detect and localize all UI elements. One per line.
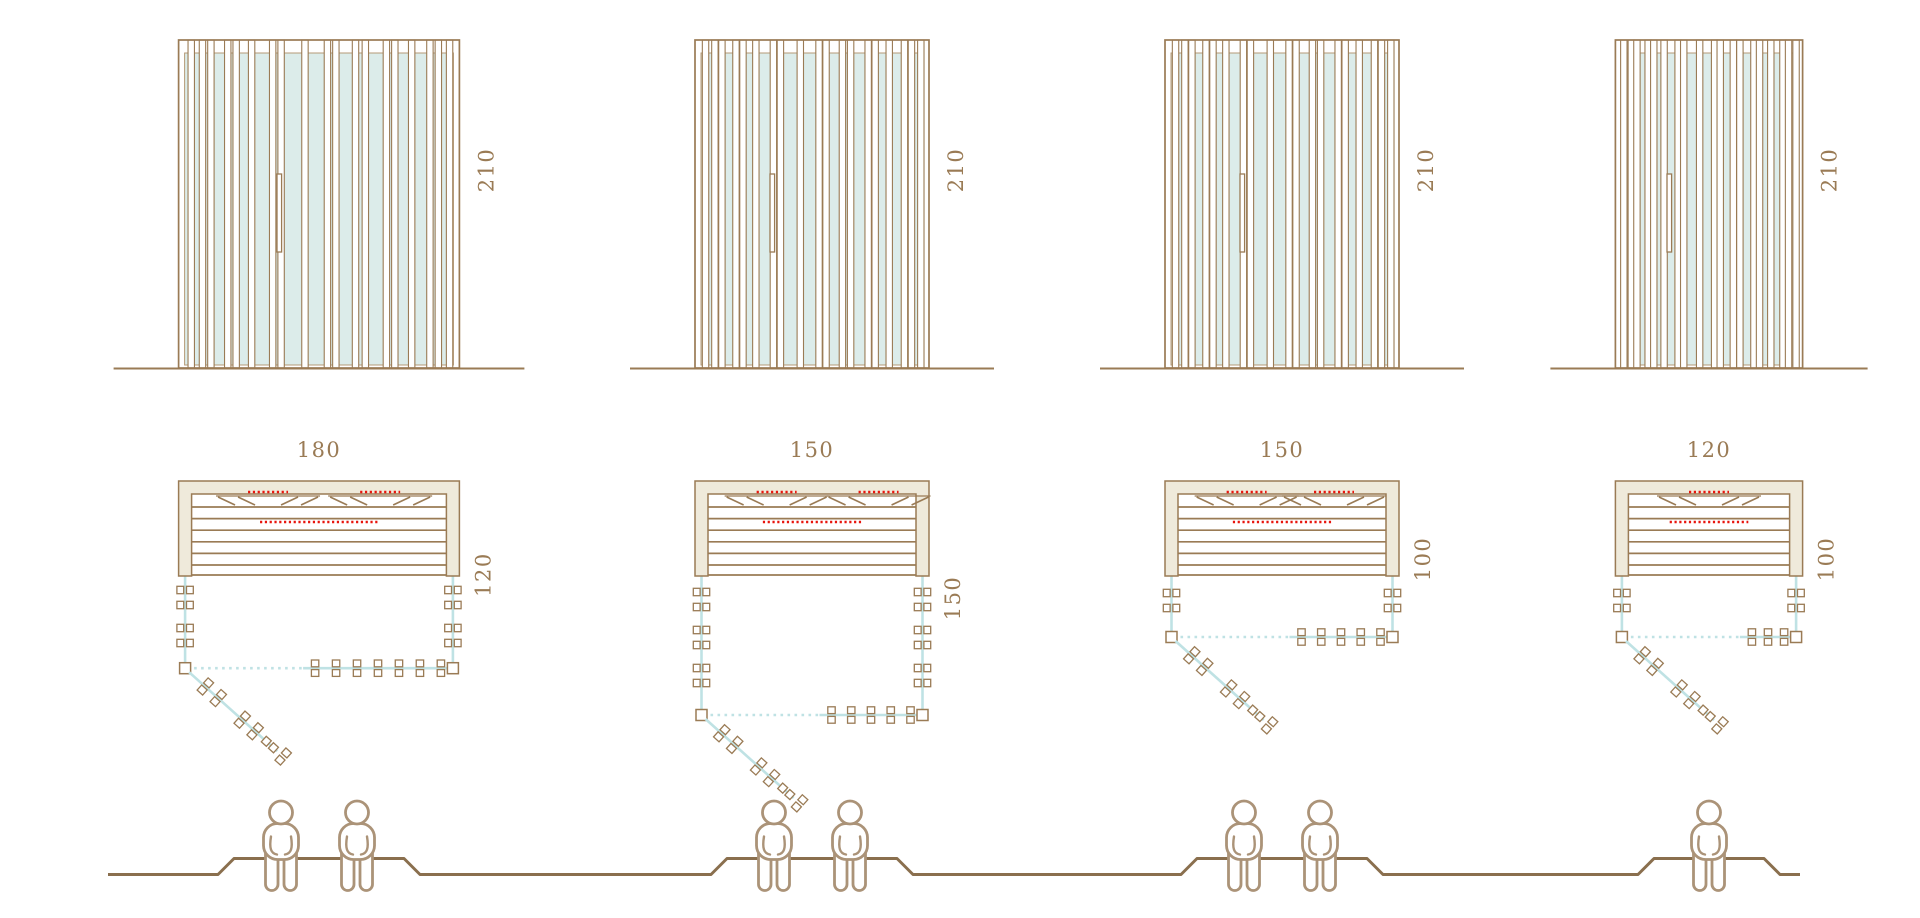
- clamp-plate: [703, 679, 710, 686]
- clamp-plate: [1780, 638, 1787, 645]
- wood-slat: [225, 40, 231, 368]
- corner-post: [447, 663, 458, 674]
- clamp-plate: [924, 603, 931, 610]
- depth-label: 120: [471, 552, 495, 597]
- wood-slat: [865, 40, 871, 368]
- wood-slat: [1634, 40, 1640, 368]
- seated-person-icon: [264, 801, 299, 891]
- vent-flap: [1347, 497, 1364, 505]
- person-head: [346, 801, 369, 824]
- clamp-plate: [703, 626, 710, 633]
- vent-flap: [727, 497, 744, 505]
- clamp-plate: [693, 664, 700, 671]
- clamp-plate: [703, 641, 710, 648]
- clamp-plate: [416, 670, 423, 677]
- vent-flap: [1197, 497, 1214, 505]
- clamp-plate: [1780, 629, 1787, 636]
- wood-slat: [777, 40, 783, 368]
- height-label: 210: [1414, 148, 1438, 193]
- clamp-plate: [1163, 589, 1170, 596]
- clamp-plate: [1173, 589, 1180, 596]
- wood-slat: [352, 40, 358, 368]
- wood-slat: [823, 40, 829, 368]
- wood-slat: [839, 40, 845, 368]
- variant-150x150: 210150150: [630, 40, 994, 812]
- clamp-plate: [1377, 638, 1384, 645]
- wood-slat: [435, 40, 441, 368]
- corner-post: [1166, 632, 1177, 643]
- vent-flap: [810, 497, 827, 505]
- wood-slat: [1182, 40, 1188, 368]
- clamp-plate: [924, 664, 931, 671]
- person-torso: [264, 824, 299, 860]
- cabin-walls: [695, 481, 929, 576]
- clamp-plate: [887, 716, 894, 723]
- person-head: [763, 801, 786, 824]
- clamp-plate: [914, 641, 921, 648]
- clamp-plate: [1337, 638, 1344, 645]
- capacity-row: [108, 801, 1800, 891]
- clamp-plate: [693, 679, 700, 686]
- person-torso: [1227, 824, 1262, 860]
- clamp-plate: [1614, 589, 1621, 596]
- wood-slat: [719, 40, 725, 368]
- clamp-plate: [1748, 638, 1755, 645]
- person-head: [839, 801, 862, 824]
- person-torso: [1692, 824, 1727, 860]
- clamp-plate: [867, 707, 874, 714]
- wood-slat: [918, 40, 924, 368]
- floor-plan-4: 120100: [1614, 438, 1839, 734]
- wood-slat: [427, 40, 433, 368]
- seated-person-icon: [1692, 801, 1727, 891]
- diagram-stage: 210180120210150150210150100210120100: [0, 0, 1920, 918]
- wood-slat: [872, 40, 878, 368]
- wood-slat: [1621, 40, 1627, 368]
- vent-flap: [1304, 497, 1321, 505]
- clamp-plate: [1798, 604, 1805, 611]
- wood-slat: [1293, 40, 1299, 368]
- wood-slat: [269, 40, 275, 368]
- wood-slat: [1335, 40, 1341, 368]
- wood-slat: [1356, 40, 1362, 368]
- clamp-plate: [353, 660, 360, 667]
- clamp-plate: [693, 626, 700, 633]
- width-label: 120: [1687, 438, 1732, 462]
- wood-slat: [1793, 40, 1799, 368]
- vent-flap: [849, 497, 866, 505]
- clamp-plate: [1377, 629, 1384, 636]
- clamp-plate: [1394, 589, 1401, 596]
- clamp-plate: [1163, 604, 1170, 611]
- wood-slat: [1378, 40, 1384, 368]
- vent-flap: [829, 497, 846, 505]
- wood-slat: [1317, 40, 1323, 368]
- clamp-plate: [1261, 724, 1271, 734]
- height-label: 210: [944, 148, 968, 193]
- depth-label: 100: [1411, 537, 1435, 582]
- wood-slat: [816, 40, 822, 368]
- wood-slat: [1730, 40, 1736, 368]
- clamp-plate: [454, 624, 461, 631]
- clamp-plate: [1788, 589, 1795, 596]
- vent-flap: [301, 497, 318, 505]
- floor-plan-3: 150100: [1163, 438, 1435, 734]
- door-handle: [770, 174, 775, 252]
- clamp-plate: [914, 679, 921, 686]
- clamp-plate: [1394, 604, 1401, 611]
- wood-slat: [1172, 40, 1178, 368]
- clamp-plate: [828, 716, 835, 723]
- person-torso: [1303, 824, 1338, 860]
- vent-flap: [1260, 497, 1277, 505]
- wood-slat: [908, 40, 914, 368]
- clamp-plate: [924, 641, 931, 648]
- wood-slat: [383, 40, 389, 368]
- clamp-plate: [374, 660, 381, 667]
- door-handle: [277, 174, 282, 252]
- wood-slat: [702, 40, 708, 368]
- clamp-plate: [311, 670, 318, 677]
- clamp-plate: [454, 601, 461, 608]
- door-handle: [1667, 174, 1672, 252]
- clamp-plate: [187, 639, 194, 646]
- clamp-plate: [1764, 638, 1771, 645]
- clamp-plate: [445, 624, 452, 631]
- clamp-plate: [907, 707, 914, 714]
- vent-flap: [330, 497, 347, 505]
- clamp-plate: [374, 670, 381, 677]
- front-elevation-1: 210: [114, 40, 525, 369]
- clamp-plate: [828, 707, 835, 714]
- seated-person-icon: [833, 801, 868, 891]
- wood-slat: [1651, 40, 1657, 368]
- wood-slat: [753, 40, 759, 368]
- wood-slat: [1756, 40, 1762, 368]
- clamp-plate: [907, 716, 914, 723]
- clamp-plate: [416, 660, 423, 667]
- clamp-plate: [791, 802, 801, 812]
- vent-flap: [350, 497, 367, 505]
- wood-slat: [712, 40, 718, 368]
- clamp-plate: [1718, 717, 1728, 727]
- clamp-plate: [454, 586, 461, 593]
- clamp-plate: [1614, 604, 1621, 611]
- clamp-plate: [914, 664, 921, 671]
- wood-slat: [188, 40, 194, 368]
- cabin-walls: [179, 481, 460, 576]
- clamp-plate: [275, 755, 285, 765]
- vent-flap: [1742, 497, 1759, 505]
- vent-flap: [1367, 497, 1384, 505]
- width-label: 180: [297, 438, 342, 462]
- clamp-plate: [1357, 638, 1364, 645]
- wood-slat: [302, 40, 308, 368]
- width-label: 150: [1260, 438, 1305, 462]
- wood-slat: [847, 40, 853, 368]
- wood-slat: [408, 40, 414, 368]
- variant-120x100: 210120100: [1550, 40, 1867, 734]
- wood-slat: [208, 40, 214, 368]
- clamp-plate: [703, 664, 710, 671]
- clamp-plate: [437, 670, 444, 677]
- clamp-plate: [1384, 589, 1391, 596]
- corner-post: [1616, 632, 1627, 643]
- wood-slat: [233, 40, 239, 368]
- clamp-plate: [867, 716, 874, 723]
- clamp-plate: [445, 586, 452, 593]
- wood-slat: [886, 40, 892, 368]
- clamp-plate: [353, 670, 360, 677]
- clamp-plate: [1748, 629, 1755, 636]
- person-head: [1698, 801, 1721, 824]
- clamp-plate: [848, 716, 855, 723]
- sauna-dimension-diagram: 210180120210150150210150100210120100: [0, 0, 1920, 918]
- clamp-plate: [798, 795, 808, 805]
- wood-slat: [1309, 40, 1315, 368]
- clamp-plate: [177, 639, 184, 646]
- wood-slat: [1696, 40, 1702, 368]
- wood-slat: [1371, 40, 1377, 368]
- wood-slat: [1681, 40, 1687, 368]
- wood-slat: [324, 40, 330, 368]
- floor-plan-1: 180120: [177, 438, 496, 765]
- person-torso: [340, 824, 375, 860]
- clamp-plate: [703, 588, 710, 595]
- vent-flap: [218, 497, 235, 505]
- clamp-plate: [693, 641, 700, 648]
- wood-slat: [333, 40, 339, 368]
- wood-slat: [446, 40, 452, 368]
- clamp-plate: [437, 660, 444, 667]
- wood-slat: [797, 40, 803, 368]
- clamp-plate: [1298, 629, 1305, 636]
- wood-slat: [1223, 40, 1229, 368]
- person-head: [1309, 801, 1332, 824]
- height-label: 210: [1818, 148, 1842, 193]
- seated-person-icon: [757, 801, 792, 891]
- depth-label: 100: [1815, 537, 1839, 582]
- wood-slat: [392, 40, 398, 368]
- wood-slat: [1717, 40, 1723, 368]
- wood-slat: [1785, 40, 1791, 368]
- wood-slat: [1388, 40, 1394, 368]
- clamp-plate: [454, 639, 461, 646]
- clamp-plate: [1318, 629, 1325, 636]
- wood-slat: [1203, 40, 1209, 368]
- vent-flap: [1217, 497, 1234, 505]
- front-elevation-3: 210: [1100, 40, 1464, 369]
- wood-slat: [901, 40, 907, 368]
- clamp-plate: [693, 603, 700, 610]
- vent-flap: [393, 497, 410, 505]
- clamp-plate: [177, 624, 184, 631]
- vent-flap: [1679, 497, 1696, 505]
- clamp-plate: [924, 588, 931, 595]
- vent-flap: [1722, 497, 1739, 505]
- variant-180x120: 210180120: [114, 40, 525, 765]
- clamp-plate: [924, 626, 931, 633]
- clamp-plate: [1268, 717, 1278, 727]
- front-elevation-4: 210: [1550, 40, 1867, 369]
- clamp-plate: [1798, 589, 1805, 596]
- person-head: [1233, 801, 1256, 824]
- wood-slat: [1661, 40, 1667, 368]
- clamp-plate: [177, 586, 184, 593]
- clamp-plate: [914, 626, 921, 633]
- wood-slat: [248, 40, 254, 368]
- corner-post: [1791, 632, 1802, 643]
- floor-plan-2: 150150: [693, 438, 965, 812]
- clamp-plate: [1173, 604, 1180, 611]
- wood-slat: [1342, 40, 1348, 368]
- vent-flap: [281, 497, 298, 505]
- person-torso: [757, 824, 792, 860]
- clamp-plate: [187, 601, 194, 608]
- clamp-plate: [914, 588, 921, 595]
- cabin-walls: [1165, 481, 1399, 576]
- corner-post: [696, 710, 707, 721]
- clamp-plate: [887, 707, 894, 714]
- vent-flap: [790, 497, 807, 505]
- clamp-plate: [1384, 604, 1391, 611]
- corner-post: [917, 710, 928, 721]
- clamp-plate: [1764, 629, 1771, 636]
- depth-label: 150: [941, 576, 965, 621]
- vent-flap: [413, 497, 430, 505]
- cabin-walls: [1615, 481, 1802, 576]
- clamp-plate: [177, 601, 184, 608]
- seated-person-icon: [340, 801, 375, 891]
- wood-slat: [1737, 40, 1743, 368]
- seated-person-icon: [1227, 801, 1262, 891]
- clamp-plate: [1623, 604, 1630, 611]
- clamp-plate: [332, 660, 339, 667]
- person-torso: [833, 824, 868, 860]
- height-label: 210: [474, 148, 498, 193]
- clamp-plate: [1337, 629, 1344, 636]
- wood-slat: [1768, 40, 1774, 368]
- wood-slat: [733, 40, 739, 368]
- clamp-plate: [1788, 604, 1795, 611]
- clamp-plate: [445, 601, 452, 608]
- wood-slat: [740, 40, 746, 368]
- wood-slat: [362, 40, 368, 368]
- wood-slat: [1247, 40, 1253, 368]
- wood-slat: [199, 40, 205, 368]
- clamp-plate: [848, 707, 855, 714]
- clamp-plate: [445, 639, 452, 646]
- clamp-plate: [924, 679, 931, 686]
- clamp-plate: [1712, 724, 1722, 734]
- clamp-plate: [1298, 638, 1305, 645]
- vent-flap: [1659, 497, 1676, 505]
- clamp-plate: [395, 660, 402, 667]
- wood-slat: [1286, 40, 1292, 368]
- clamp-plate: [281, 748, 291, 758]
- clamp-plate: [1357, 629, 1364, 636]
- front-elevation-2: 210: [630, 40, 994, 369]
- clamp-plate: [914, 603, 921, 610]
- wood-slat: [1267, 40, 1273, 368]
- corner-post: [1387, 632, 1398, 643]
- clamp-plate: [332, 670, 339, 677]
- clamp-plate: [1318, 638, 1325, 645]
- clamp-plate: [311, 660, 318, 667]
- vent-flap: [238, 497, 255, 505]
- wood-slat: [1210, 40, 1216, 368]
- wood-slat: [1189, 40, 1195, 368]
- width-label: 150: [790, 438, 835, 462]
- vent-flap: [747, 497, 764, 505]
- door-handle: [1240, 174, 1245, 252]
- clamp-plate: [395, 670, 402, 677]
- variant-150x100: 210150100: [1100, 40, 1464, 734]
- vent-flap: [892, 497, 909, 505]
- seated-person-icon: [1303, 801, 1338, 891]
- clamp-plate: [703, 603, 710, 610]
- clamp-plate: [1623, 589, 1630, 596]
- clamp-plate: [693, 588, 700, 595]
- person-head: [270, 801, 293, 824]
- clamp-plate: [187, 586, 194, 593]
- corner-post: [180, 663, 191, 674]
- clamp-plate: [187, 624, 194, 631]
